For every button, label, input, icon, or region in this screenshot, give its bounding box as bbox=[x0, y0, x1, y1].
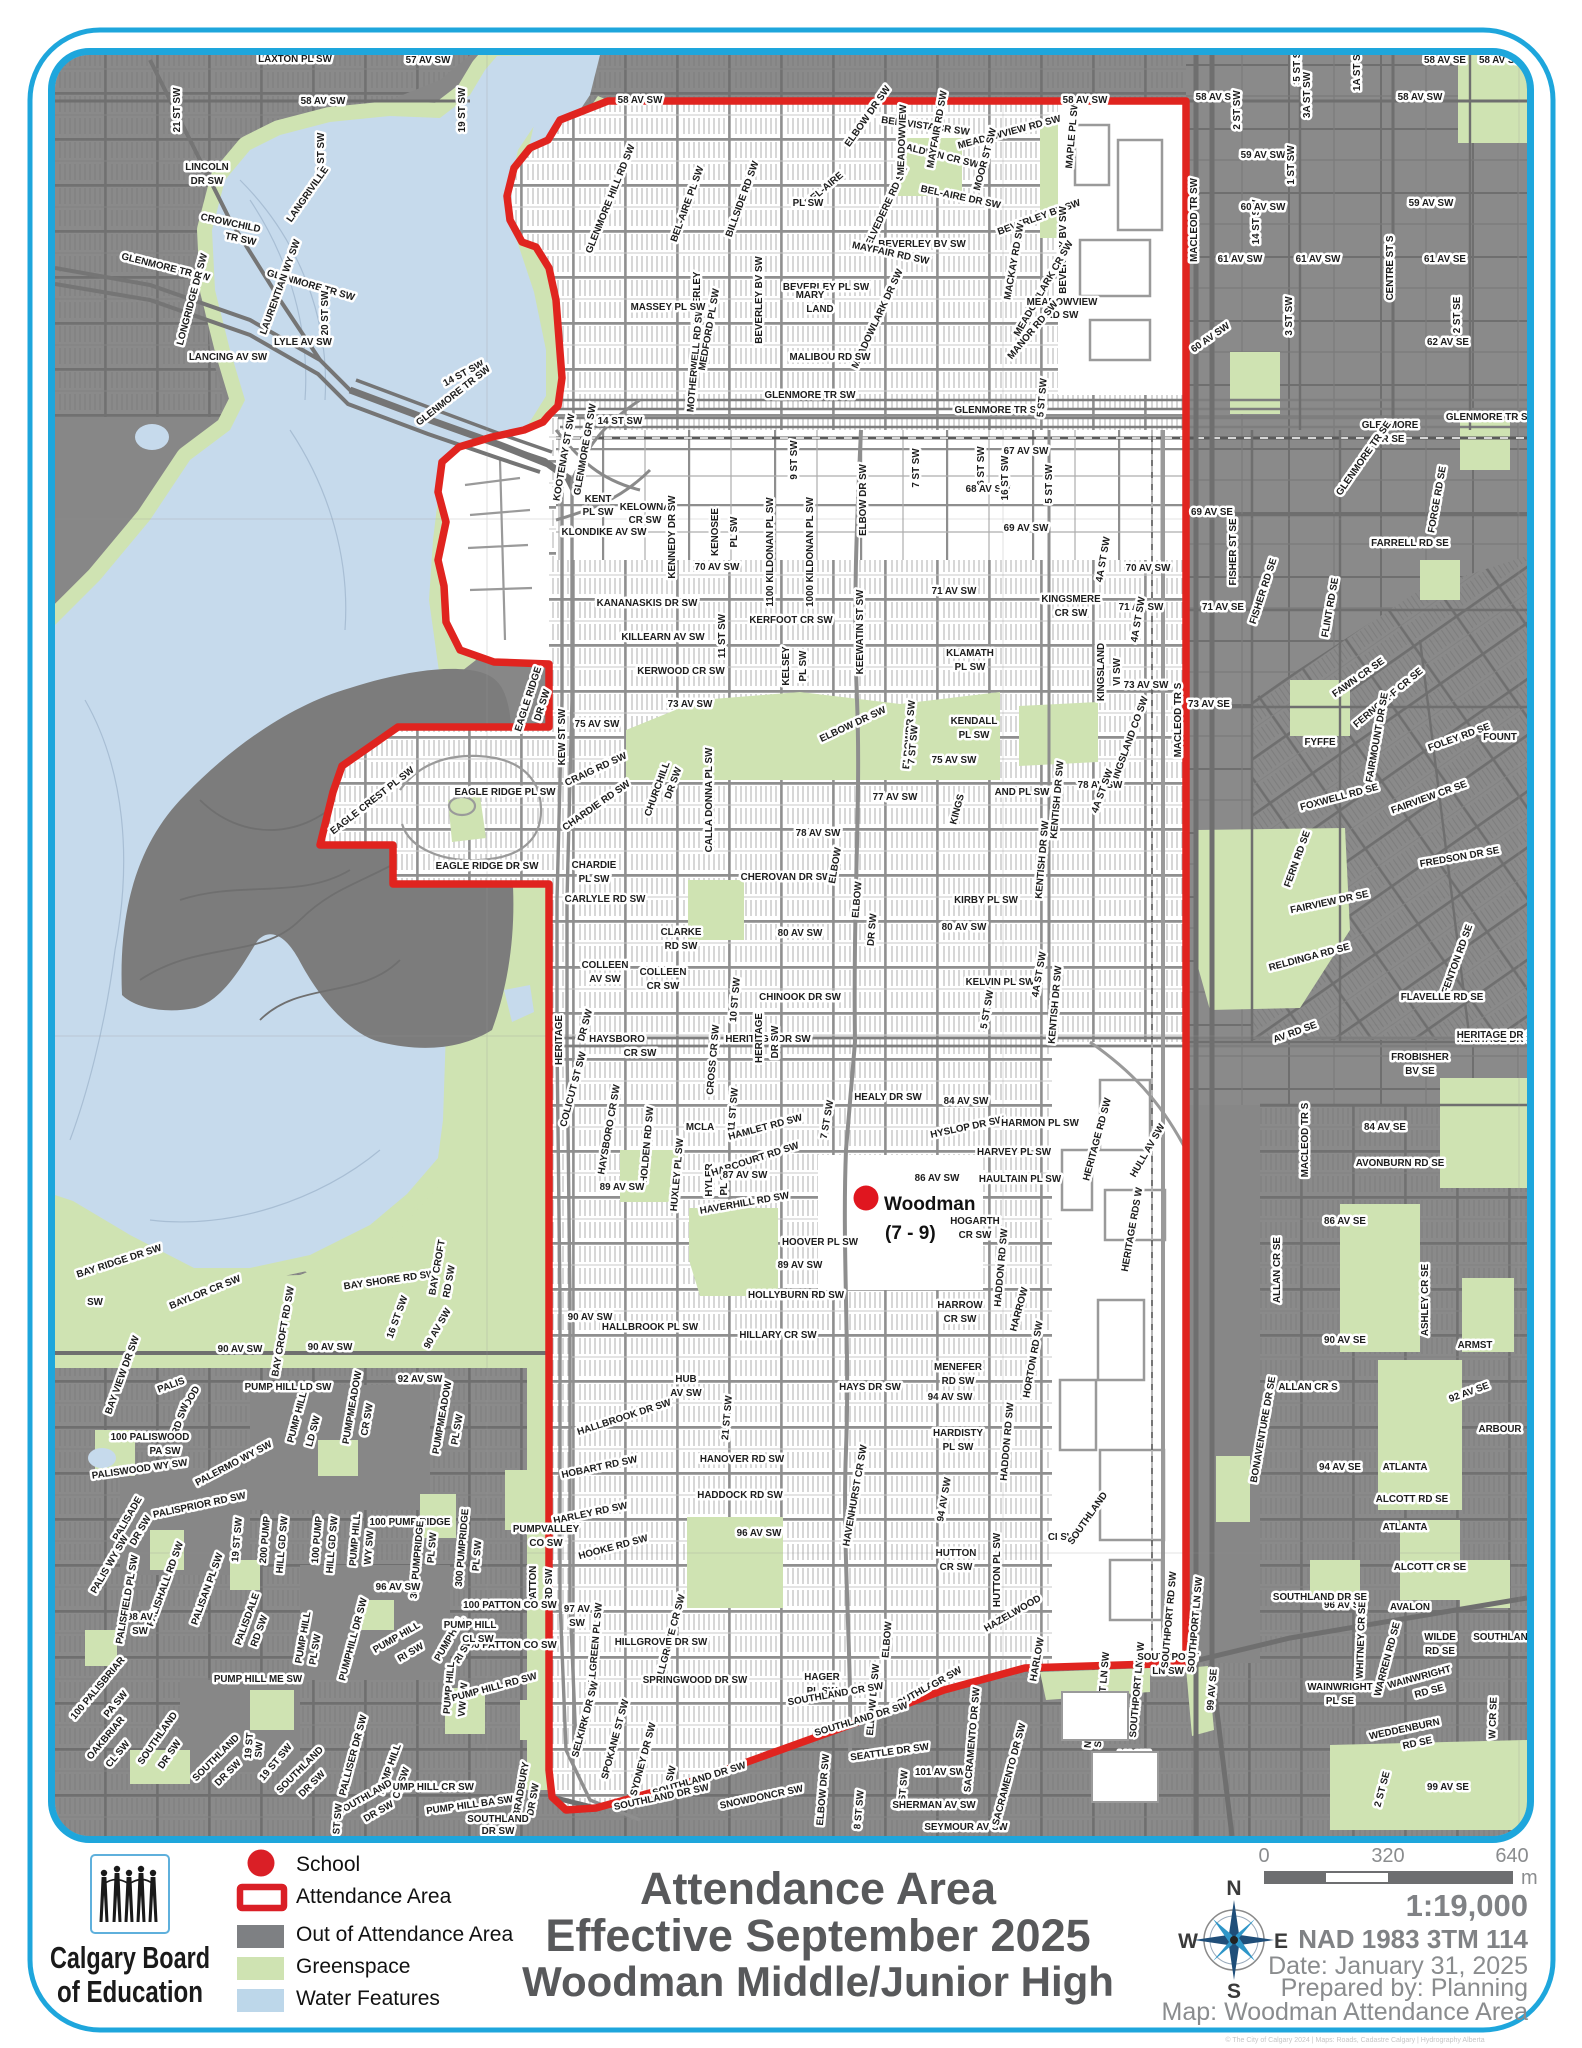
svg-text:PL SW: PL SW bbox=[943, 1442, 975, 1453]
svg-text:58 AV SW: 58 AV SW bbox=[301, 96, 346, 107]
svg-text:75 AV SW: 75 AV SW bbox=[932, 755, 977, 766]
svg-text:CR SW: CR SW bbox=[629, 515, 662, 526]
svg-text:61 AV SW: 61 AV SW bbox=[1218, 254, 1263, 265]
svg-text:SHERMAN AV SW: SHERMAN AV SW bbox=[892, 1800, 976, 1811]
svg-text:PL SW: PL SW bbox=[583, 507, 615, 518]
svg-text:71 AV SW: 71 AV SW bbox=[932, 586, 977, 597]
svg-text:MACLEOD TR S: MACLEOD TR S bbox=[1173, 682, 1184, 757]
svg-text:FROBISHER: FROBISHER bbox=[1391, 1052, 1449, 1063]
svg-text:320: 320 bbox=[1371, 1845, 1404, 1867]
svg-text:62 AV SE: 62 AV SE bbox=[1427, 337, 1469, 348]
svg-text:58 AV SW: 58 AV SW bbox=[1398, 92, 1443, 103]
svg-text:CR SW: CR SW bbox=[944, 1314, 977, 1325]
svg-text:73 AV SE: 73 AV SE bbox=[1188, 699, 1230, 710]
svg-text:HILLGROVE DR SW: HILLGROVE DR SW bbox=[615, 1637, 708, 1648]
svg-text:KERFOOT CR SW: KERFOOT CR SW bbox=[749, 615, 833, 626]
svg-text:70 AV SW: 70 AV SW bbox=[695, 562, 740, 573]
svg-text:DR SW: DR SW bbox=[482, 1826, 515, 1837]
svg-text:Woodman: Woodman bbox=[884, 1194, 975, 1215]
svg-text:CENTRE ST S: CENTRE ST S bbox=[1385, 235, 1396, 300]
svg-text:ATLANTA: ATLANTA bbox=[1383, 1522, 1428, 1533]
svg-text:of Education: of Education bbox=[57, 1974, 203, 2009]
svg-text:78 AV SW: 78 AV SW bbox=[796, 828, 841, 839]
svg-text:87 AV SW: 87 AV SW bbox=[723, 1170, 768, 1181]
svg-text:HARMON PL SW: HARMON PL SW bbox=[1001, 1118, 1079, 1129]
svg-text:AVONBURN RD SE: AVONBURN RD SE bbox=[1356, 1158, 1445, 1169]
svg-text:96 AV SW: 96 AV SW bbox=[737, 1528, 782, 1539]
svg-text:58 AV SW: 58 AV SW bbox=[618, 95, 663, 106]
svg-text:20 ST SW: 20 ST SW bbox=[320, 290, 331, 335]
svg-text:CLARKE: CLARKE bbox=[661, 927, 702, 938]
svg-text:AV SW: AV SW bbox=[670, 1388, 702, 1399]
svg-text:86 AV SE: 86 AV SE bbox=[1324, 1216, 1366, 1227]
svg-text:CR SW: CR SW bbox=[624, 1048, 657, 1059]
svg-text:SOUTHLAND: SOUTHLAND bbox=[467, 1814, 529, 1825]
svg-text:SPRINGWOOD DR SW: SPRINGWOOD DR SW bbox=[643, 1675, 748, 1686]
svg-text:KENT: KENT bbox=[585, 494, 612, 505]
svg-text:MCLA: MCLA bbox=[686, 1122, 714, 1133]
svg-text:14 ST SW: 14 ST SW bbox=[598, 416, 643, 427]
svg-text:PL SW: PL SW bbox=[579, 874, 611, 885]
svg-text:AVALON: AVALON bbox=[1390, 1602, 1430, 1613]
svg-text:70 AV SW: 70 AV SW bbox=[1126, 563, 1171, 574]
svg-text:SW: SW bbox=[87, 1297, 104, 1308]
svg-text:1 ST SW: 1 ST SW bbox=[1286, 145, 1297, 185]
svg-text:96 AV SW: 96 AV SW bbox=[376, 1582, 421, 1593]
svg-text:6 ST SW: 6 ST SW bbox=[976, 446, 987, 486]
svg-text:RD SE: RD SE bbox=[1425, 1646, 1455, 1657]
svg-text:W CR SE: W CR SE bbox=[1487, 1696, 1499, 1739]
svg-text:PL SW: PL SW bbox=[955, 662, 987, 673]
svg-text:ATLANTA: ATLANTA bbox=[1383, 1462, 1428, 1473]
svg-text:60 AV SW: 60 AV SW bbox=[1241, 202, 1286, 213]
svg-text:59 AV SW: 59 AV SW bbox=[1409, 198, 1454, 209]
svg-text:PL SW: PL SW bbox=[959, 730, 991, 741]
svg-text:KELSEY: KELSEY bbox=[781, 646, 792, 686]
svg-text:SW: SW bbox=[253, 1741, 265, 1758]
svg-text:KINGSMERE: KINGSMERE bbox=[1041, 594, 1101, 605]
svg-text:Attendance Area: Attendance Area bbox=[640, 1863, 997, 1914]
svg-text:Calgary Board: Calgary Board bbox=[50, 1940, 210, 1975]
svg-text:69 AV SE: 69 AV SE bbox=[1191, 507, 1233, 518]
svg-text:E: E bbox=[1274, 1930, 1288, 1953]
svg-text:CARLYLE RD SW: CARLYLE RD SW bbox=[565, 894, 646, 905]
svg-text:57 AV SW: 57 AV SW bbox=[406, 55, 451, 66]
svg-text:CHARDIE: CHARDIE bbox=[572, 860, 617, 871]
svg-text:LYLE AV SW: LYLE AV SW bbox=[274, 337, 333, 348]
svg-text:KEEWATIN ST SW: KEEWATIN ST SW bbox=[855, 589, 866, 674]
svg-text:RD SW: RD SW bbox=[544, 1568, 555, 1601]
svg-text:KELOWNA: KELOWNA bbox=[620, 502, 671, 513]
svg-text:CALLA DONNA PL SW: CALLA DONNA PL SW bbox=[704, 747, 715, 852]
svg-text:71 AV SE: 71 AV SE bbox=[1202, 602, 1244, 613]
svg-text:CR SW: CR SW bbox=[959, 1230, 992, 1241]
svg-text:PA SW: PA SW bbox=[149, 1446, 181, 1457]
svg-text:KIRBY PL SW: KIRBY PL SW bbox=[954, 895, 1019, 906]
svg-text:16 ST SW: 16 ST SW bbox=[1000, 455, 1011, 500]
svg-text:HERITAGE DR SW: HERITAGE DR SW bbox=[725, 1034, 811, 1045]
svg-text:LINCOLN: LINCOLN bbox=[185, 162, 229, 173]
svg-text:HEALY DR SW: HEALY DR SW bbox=[854, 1092, 922, 1103]
svg-text:HAYS DR SW: HAYS DR SW bbox=[839, 1382, 901, 1393]
svg-text:KENNEDY DR SW: KENNEDY DR SW bbox=[667, 495, 678, 579]
svg-text:SOUTHLAND: SOUTHLAND bbox=[1473, 1632, 1535, 1643]
svg-text:KLAMATH: KLAMATH bbox=[946, 648, 994, 659]
svg-text:PATTON: PATTON bbox=[528, 1566, 539, 1605]
svg-text:94 AV SW: 94 AV SW bbox=[928, 1392, 973, 1403]
svg-text:SOUTHLAND DR SE: SOUTHLAND DR SE bbox=[1273, 1592, 1368, 1603]
svg-text:ARBOUR: ARBOUR bbox=[1479, 1424, 1522, 1435]
svg-text:MACLEOD TR SW: MACLEOD TR SW bbox=[1189, 177, 1200, 262]
svg-text:94 AV SE: 94 AV SE bbox=[1319, 1462, 1361, 1473]
svg-text:97 AV: 97 AV bbox=[564, 1604, 591, 1615]
svg-text:SW: SW bbox=[132, 1626, 149, 1637]
svg-text:9 ST SW: 9 ST SW bbox=[789, 440, 800, 480]
svg-text:PUMP HILL CR SW: PUMP HILL CR SW bbox=[386, 1782, 475, 1793]
svg-text:CR SW: CR SW bbox=[647, 981, 680, 992]
svg-text:90 AV SW: 90 AV SW bbox=[308, 1342, 353, 1353]
svg-text:LAXTON PL SW: LAXTON PL SW bbox=[258, 54, 332, 65]
svg-text:KLONDIKE AV SW: KLONDIKE AV SW bbox=[562, 527, 648, 538]
svg-text:ASHLEY CR SE: ASHLEY CR SE bbox=[1420, 1263, 1431, 1336]
svg-text:KELVIN PL SW: KELVIN PL SW bbox=[966, 977, 1036, 988]
svg-text:7 ST SW: 7 ST SW bbox=[911, 448, 922, 488]
svg-text:2 ST SW: 2 ST SW bbox=[1232, 90, 1243, 130]
svg-text:KINGSLAND: KINGSLAND bbox=[1096, 643, 1107, 701]
svg-text:HILLARY CR SW: HILLARY CR SW bbox=[739, 1330, 817, 1341]
svg-text:FYFFE: FYFFE bbox=[1304, 737, 1335, 748]
svg-text:58 AV SW: 58 AV SW bbox=[1063, 95, 1108, 106]
svg-text:HUB: HUB bbox=[675, 1374, 696, 1385]
svg-text:1000 KILDONAN PL SW: 1000 KILDONAN PL SW bbox=[805, 496, 816, 607]
svg-text:FOUNT: FOUNT bbox=[1483, 732, 1517, 743]
svg-text:84 AV SW: 84 AV SW bbox=[944, 1096, 989, 1107]
svg-text:CHINOOK DR SW: CHINOOK DR SW bbox=[759, 992, 841, 1003]
svg-text:WILDE: WILDE bbox=[1424, 1632, 1456, 1643]
svg-text:HOGARTH: HOGARTH bbox=[950, 1216, 1000, 1227]
svg-text:Water Features: Water Features bbox=[296, 1987, 440, 2010]
svg-text:VI SW: VI SW bbox=[1112, 657, 1123, 686]
svg-text:KEW ST SW: KEW ST SW bbox=[557, 708, 568, 765]
svg-text:PL SW: PL SW bbox=[729, 516, 740, 548]
svg-text:98 AV: 98 AV bbox=[127, 1612, 154, 1623]
svg-text:HALLBROOK PL SW: HALLBROOK PL SW bbox=[602, 1322, 699, 1333]
svg-text:80 AV SW: 80 AV SW bbox=[778, 928, 823, 939]
svg-text:PUMP HILL: PUMP HILL bbox=[444, 1620, 497, 1631]
svg-text:77 AV SW: 77 AV SW bbox=[873, 792, 918, 803]
svg-text:SW: SW bbox=[569, 1618, 586, 1629]
svg-text:FLAVELLE RD SE: FLAVELLE RD SE bbox=[1401, 992, 1484, 1003]
svg-text:ALLAN CR S: ALLAN CR S bbox=[1278, 1382, 1338, 1393]
svg-text:W: W bbox=[1178, 1930, 1198, 1953]
svg-text:ARMST: ARMST bbox=[1458, 1340, 1493, 1351]
svg-text:Effective September 2025: Effective September 2025 bbox=[545, 1910, 1090, 1961]
svg-text:61 AV SW: 61 AV SW bbox=[1296, 254, 1341, 265]
svg-text:KANANASKIS DR SW: KANANASKIS DR SW bbox=[597, 598, 698, 609]
svg-text:ALCOTT CR SE: ALCOTT CR SE bbox=[1394, 1562, 1467, 1573]
svg-text:KILLEARN AV SW: KILLEARN AV SW bbox=[621, 632, 705, 643]
svg-text:MALIBOU RD SW: MALIBOU RD SW bbox=[789, 352, 871, 363]
svg-text:100 PALISWOOD: 100 PALISWOOD bbox=[111, 1432, 190, 1443]
svg-text:75 AV SW: 75 AV SW bbox=[575, 719, 620, 730]
svg-text:(7 - 9): (7 - 9) bbox=[885, 1223, 936, 1244]
svg-text:COLLEEN: COLLEEN bbox=[640, 967, 687, 978]
svg-text:PUMP HILL ME SW: PUMP HILL ME SW bbox=[214, 1674, 303, 1685]
svg-text:DR SW: DR SW bbox=[770, 1025, 781, 1058]
svg-text:PUMPVALLEY: PUMPVALLEY bbox=[513, 1524, 580, 1535]
svg-text:MARY: MARY bbox=[796, 290, 825, 301]
svg-text:HARDISTY: HARDISTY bbox=[933, 1428, 984, 1439]
svg-text:KERWOOD CR SW: KERWOOD CR SW bbox=[637, 666, 725, 677]
svg-text:ALLAN CR SE: ALLAN CR SE bbox=[1272, 1237, 1283, 1303]
svg-text:School: School bbox=[296, 1853, 360, 1876]
svg-text:KENDALL: KENDALL bbox=[951, 716, 998, 727]
svg-text:PL SW: PL SW bbox=[798, 650, 809, 682]
svg-text:19 ST SW: 19 ST SW bbox=[457, 87, 468, 132]
svg-text:HANOVER RD SW: HANOVER RD SW bbox=[700, 1454, 785, 1465]
svg-text:84 AV SE: 84 AV SE bbox=[1364, 1122, 1406, 1133]
svg-text:59 AV SW: 59 AV SW bbox=[1241, 150, 1286, 161]
svg-text:MEADOWVIEW: MEADOWVIEW bbox=[1027, 297, 1099, 308]
svg-text:FARRELL RD SE: FARRELL RD SE bbox=[1371, 538, 1449, 549]
svg-text:92 AV SW: 92 AV SW bbox=[398, 1374, 443, 1385]
svg-text:MACLEOD TR S: MACLEOD TR S bbox=[1300, 1102, 1311, 1177]
svg-text:640: 640 bbox=[1495, 1845, 1528, 1867]
svg-text:GLENMORE TR SW: GLENMORE TR SW bbox=[955, 405, 1047, 416]
svg-text:58 AV SE: 58 AV SE bbox=[1424, 55, 1466, 66]
svg-text:ELBOW DR SW: ELBOW DR SW bbox=[858, 463, 869, 536]
svg-text:BV SE: BV SE bbox=[1405, 1066, 1435, 1077]
svg-text:CO SW: CO SW bbox=[529, 1538, 563, 1549]
svg-text:1:19,000: 1:19,000 bbox=[1406, 1888, 1528, 1923]
svg-text:HAULTAIN PL SW: HAULTAIN PL SW bbox=[979, 1174, 1062, 1185]
svg-text:MENEFER: MENEFER bbox=[934, 1362, 982, 1373]
svg-text:RD SW: RD SW bbox=[942, 1376, 975, 1387]
svg-text:89 AV SW: 89 AV SW bbox=[778, 1260, 823, 1271]
svg-text:11 ST SW: 11 ST SW bbox=[717, 613, 728, 658]
svg-text:HUTTON: HUTTON bbox=[936, 1548, 977, 1559]
svg-text:GLENMORE TR SE: GLENMORE TR SE bbox=[1446, 412, 1535, 423]
svg-text:73 AV SW: 73 AV SW bbox=[1124, 680, 1169, 691]
svg-text:WAINWRIGHT: WAINWRIGHT bbox=[1307, 1682, 1372, 1693]
svg-text:BEVERLEY BV SW: BEVERLEY BV SW bbox=[754, 256, 765, 344]
svg-text:Out of Attendance Area: Out of Attendance Area bbox=[296, 1923, 513, 1946]
svg-text:5 ST SW: 5 ST SW bbox=[1044, 464, 1055, 504]
svg-text:73 AV SW: 73 AV SW bbox=[668, 699, 713, 710]
svg-text:CR SW: CR SW bbox=[1055, 608, 1088, 619]
svg-text:EAGLE RIDGE PL SW: EAGLE RIDGE PL SW bbox=[454, 787, 556, 798]
svg-text:100 PATTON CO SW: 100 PATTON CO SW bbox=[463, 1600, 557, 1611]
svg-text:DR SW: DR SW bbox=[191, 176, 224, 187]
svg-text:GLENMORE TR SW: GLENMORE TR SW bbox=[765, 390, 857, 401]
svg-text:80 AV SW: 80 AV SW bbox=[942, 922, 987, 933]
svg-text:21 ST SW: 21 ST SW bbox=[172, 87, 183, 132]
svg-text:PL SE: PL SE bbox=[1326, 1696, 1355, 1707]
svg-text:AND PL SW: AND PL SW bbox=[995, 787, 1051, 798]
svg-text:HADDOCK RD SW: HADDOCK RD SW bbox=[697, 1490, 783, 1501]
svg-text:101 AV SW: 101 AV SW bbox=[915, 1767, 966, 1778]
svg-text:FISHER ST SE: FISHER ST SE bbox=[1228, 518, 1239, 585]
svg-text:69 AV SW: 69 AV SW bbox=[1004, 523, 1049, 534]
svg-text:Woodman Middle/Junior High: Woodman Middle/Junior High bbox=[522, 1958, 1114, 2005]
svg-text:3A ST SW: 3A ST SW bbox=[1302, 71, 1313, 118]
svg-text:1100 KILDONAN PL SW: 1100 KILDONAN PL SW bbox=[765, 497, 776, 607]
svg-text:AV SW: AV SW bbox=[589, 974, 621, 985]
svg-text:© The City of Calgary 2024 | M: © The City of Calgary 2024 | Maps: Roads… bbox=[1225, 2036, 1484, 2044]
svg-text:HERITAGE: HERITAGE bbox=[554, 1015, 565, 1065]
svg-text:ALCOTT RD SE: ALCOTT RD SE bbox=[1376, 1494, 1449, 1505]
svg-text:HOLLYBURN RD SW: HOLLYBURN RD SW bbox=[748, 1290, 845, 1301]
svg-text:m: m bbox=[1521, 1867, 1538, 1889]
svg-text:86 AV SW: 86 AV SW bbox=[915, 1173, 960, 1184]
svg-text:3 ST SW: 3 ST SW bbox=[1284, 296, 1295, 336]
svg-text:HARVEY PL SW: HARVEY PL SW bbox=[977, 1147, 1052, 1158]
svg-text:HAGER: HAGER bbox=[804, 1672, 839, 1683]
svg-text:HUTTON PL SW: HUTTON PL SW bbox=[992, 1532, 1003, 1607]
svg-text:CHEROVAN DR SW: CHEROVAN DR SW bbox=[741, 872, 832, 883]
svg-text:RD SW: RD SW bbox=[665, 941, 698, 952]
svg-text:MASSEY PL SW: MASSEY PL SW bbox=[631, 302, 707, 313]
svg-text:Attendance Area: Attendance Area bbox=[296, 1885, 452, 1908]
svg-text:67 AV SW: 67 AV SW bbox=[1004, 446, 1049, 457]
svg-text:HOOVER PL SW: HOOVER PL SW bbox=[782, 1237, 859, 1248]
svg-text:NAD 1983 3TM 114: NAD 1983 3TM 114 bbox=[1298, 1924, 1528, 1954]
svg-text:99 AV SE: 99 AV SE bbox=[1427, 1782, 1469, 1793]
svg-text:2 ST SE: 2 ST SE bbox=[1452, 296, 1463, 333]
svg-text:N: N bbox=[1226, 1877, 1241, 1900]
svg-text:EAGLE RIDGE DR SW: EAGLE RIDGE DR SW bbox=[436, 861, 540, 872]
svg-text:LANCING AV SW: LANCING AV SW bbox=[189, 352, 268, 363]
svg-text:PL SW: PL SW bbox=[793, 198, 825, 209]
svg-text:Map: Woodman Attendance Area: Map: Woodman Attendance Area bbox=[1162, 1998, 1529, 2026]
svg-text:HERITAGE: HERITAGE bbox=[754, 1013, 765, 1063]
svg-text:COLLEEN: COLLEEN bbox=[582, 960, 629, 971]
svg-text:HARROW: HARROW bbox=[937, 1300, 983, 1311]
svg-text:KENOSEE: KENOSEE bbox=[710, 508, 721, 556]
svg-text:LAND: LAND bbox=[806, 304, 833, 315]
svg-text:61 AV SE: 61 AV SE bbox=[1424, 254, 1466, 265]
svg-text:0: 0 bbox=[1258, 1845, 1269, 1867]
svg-text:90 AV SW: 90 AV SW bbox=[218, 1344, 263, 1355]
svg-text:Greenspace: Greenspace bbox=[296, 1955, 410, 1978]
svg-text:90 AV SE: 90 AV SE bbox=[1324, 1335, 1366, 1346]
svg-text:HAYSBORO: HAYSBORO bbox=[589, 1034, 645, 1045]
svg-text:PUMP HILL LD SW: PUMP HILL LD SW bbox=[245, 1382, 332, 1393]
svg-text:100 PUMP RIDGE: 100 PUMP RIDGE bbox=[370, 1517, 451, 1528]
svg-text:CL SW: CL SW bbox=[462, 1634, 494, 1645]
svg-text:89 AV SW: 89 AV SW bbox=[600, 1182, 645, 1193]
svg-text:CR SW: CR SW bbox=[940, 1562, 973, 1573]
